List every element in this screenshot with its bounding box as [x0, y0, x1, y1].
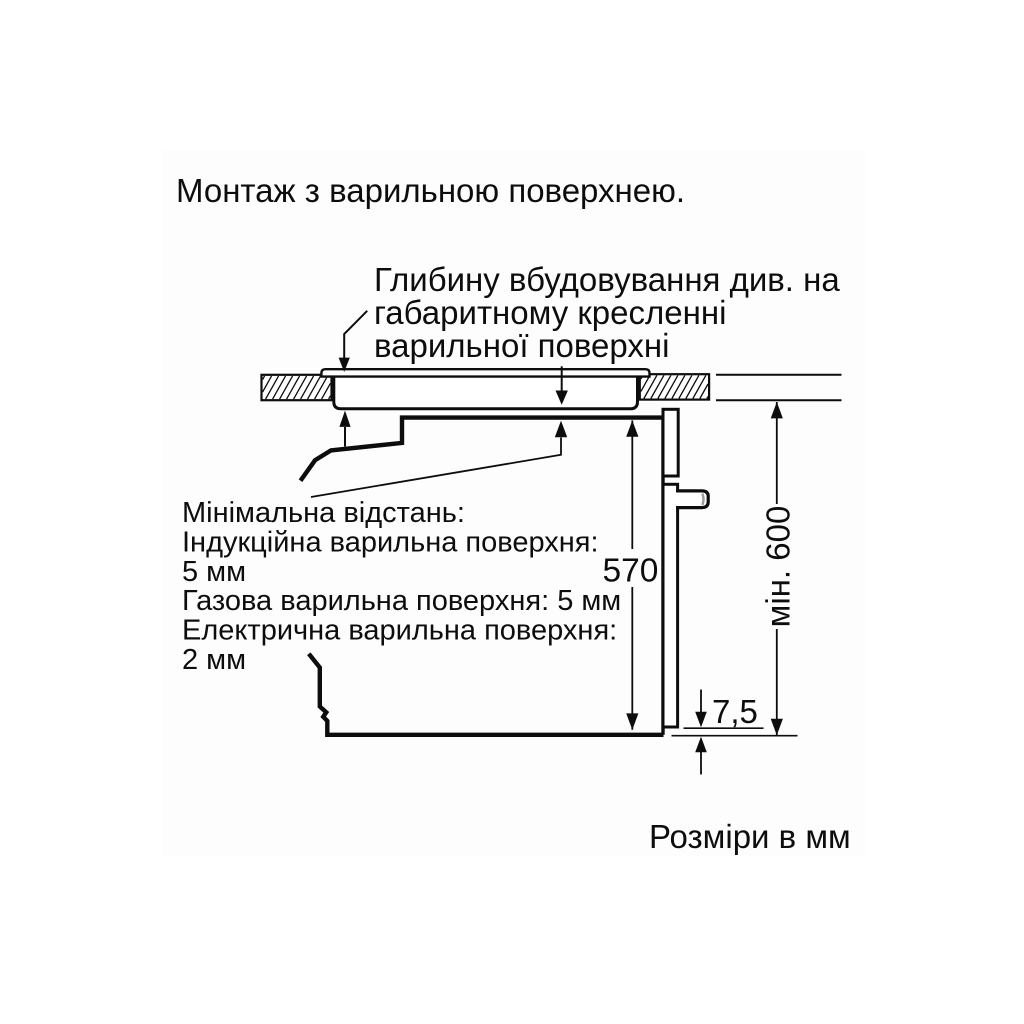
svg-text:Глибину вбудовування див. на: Глибину вбудовування див. на: [374, 261, 840, 298]
svg-text:Газова варильна поверхня: 5 мм: Газова варильна поверхня: 5 мм: [182, 585, 621, 617]
svg-text:7,5: 7,5: [712, 693, 758, 730]
svg-text:мін. 600: мін. 600: [760, 506, 797, 628]
svg-text:Мінімальна відстань:: Мінімальна відстань:: [182, 497, 465, 529]
svg-text:варильної поверхні: варильної поверхні: [374, 327, 669, 364]
svg-text:габаритному кресленні: габаритному кресленні: [374, 294, 726, 331]
svg-text:5 мм: 5 мм: [182, 556, 246, 588]
svg-text:Розміри в мм: Розміри в мм: [649, 818, 851, 855]
svg-text:Індукційна варильна поверхня:: Індукційна варильна поверхня:: [182, 526, 599, 558]
svg-text:Електрична варильна поверхня:: Електрична варильна поверхня:: [182, 615, 617, 647]
svg-text:2 мм: 2 мм: [182, 644, 246, 676]
svg-text:Монтаж з варильною поверхнею.: Монтаж з варильною поверхнею.: [176, 172, 685, 209]
svg-text:570: 570: [603, 553, 659, 590]
